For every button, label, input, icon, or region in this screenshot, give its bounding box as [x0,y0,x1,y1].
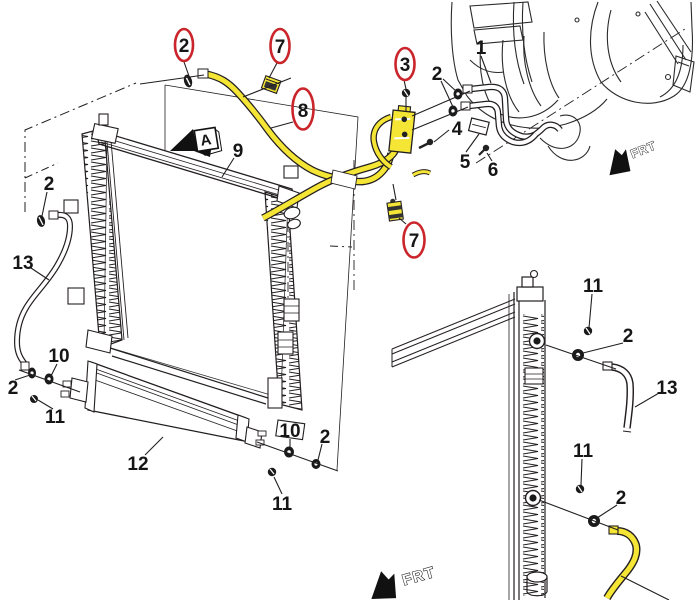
diagram-art: A FRT FRT 2 7 8 3 7 1 2 4 5 6 9 2 13 10 … [0,0,696,600]
spacer-5 [469,118,490,135]
pipe-fitting [21,362,29,370]
callout-2-engine: 2 [432,64,443,85]
callout-2-left: 2 [44,174,55,195]
callout-7-circled: 7 [275,37,286,58]
engine-sketch [451,1,694,160]
callout-7b-circled: 7 [409,231,420,252]
callout-2-left-bottom: 2 [8,378,19,399]
parts-diagram-canvas: A FRT FRT 2 7 8 3 7 1 2 4 5 6 9 2 13 10 … [0,0,696,600]
clip-7 [261,76,280,94]
callout-11-right-top: 11 [583,276,604,297]
callout-10-left: 10 [48,346,69,367]
callout-13-right: 13 [656,378,677,399]
callout-12: 12 [127,454,148,475]
callout-4: 4 [452,119,463,140]
hose-yellow-bottom-right [607,526,637,598]
callout-2-bottom: 2 [320,427,331,448]
pipe-fitting [198,69,208,78]
callout-3-circled: 3 [400,55,411,76]
outlet-hose-13-right [603,362,631,432]
callout-11-bottom: 11 [272,494,293,515]
callout-6: 6 [488,160,499,181]
callout-5: 5 [460,152,471,173]
frt-marker-bottom: FRT [365,557,439,600]
callout-10-bottom: 10 [279,421,300,442]
radiator-side-view [392,271,547,600]
callout-13-left: 13 [12,253,33,274]
frt-marker-top: FRT [601,135,661,179]
callout-8-circled: 8 [298,101,309,122]
pipe-fitting [49,211,58,219]
callout-2-right-bottom: 2 [616,488,627,509]
view-a-marker: A [170,127,222,157]
callout-11-left: 11 [45,407,66,428]
callout-2-circled: 2 [179,36,190,57]
radiator-fins [521,314,544,596]
callout-1: 1 [476,38,487,59]
cooler-pipe-assembly-1 [461,85,560,143]
callout-2-right-top: 2 [623,326,634,347]
pipe-bracket [389,105,416,153]
callout-11-right-bottom: 11 [573,441,594,462]
clip-7 [386,198,403,221]
frt-arrow-icon [365,568,401,600]
frt-label: FRT [400,564,437,590]
callout-9: 9 [233,141,244,162]
frt-label: FRT [629,138,659,161]
